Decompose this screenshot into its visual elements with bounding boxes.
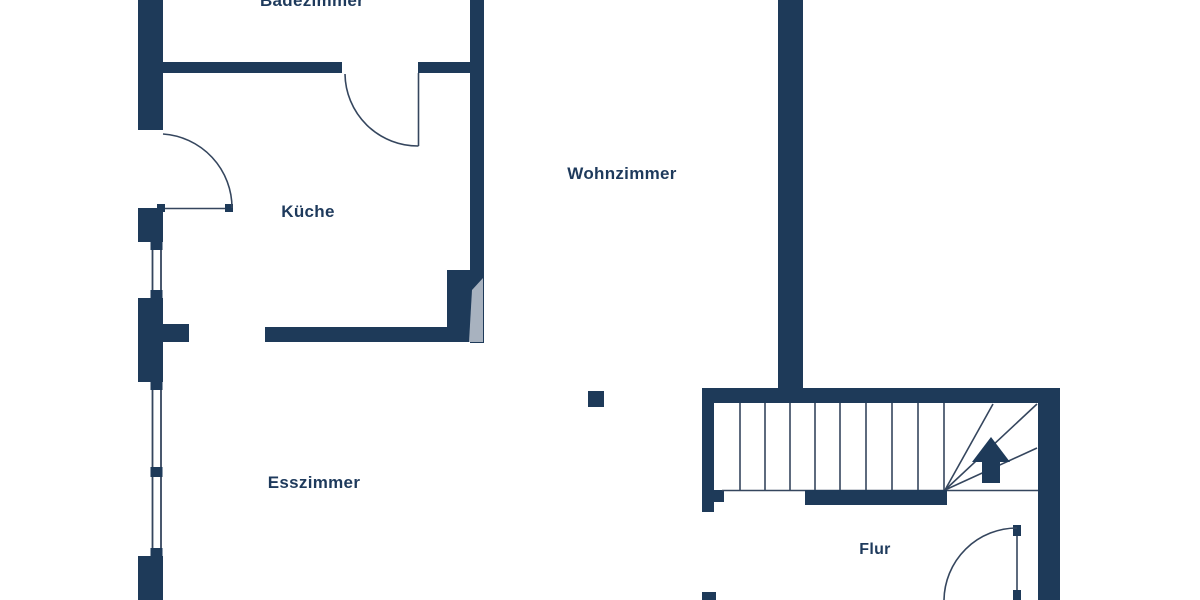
window-frame-mark <box>151 242 163 250</box>
wall-badezimmer-bottom-left <box>163 62 342 73</box>
window-esszimmer <box>151 382 163 556</box>
window-frame-mark <box>151 290 163 298</box>
door-swing-arc <box>163 134 232 208</box>
door-kueche <box>157 134 233 212</box>
wall-central <box>778 0 803 395</box>
floor-plan: Badezimmer Küche Wohnzimmer Esszimmer Fl… <box>0 0 1200 600</box>
arrow-shaft <box>982 462 1000 483</box>
wall-left-stub <box>163 324 189 342</box>
wall-stairs-top <box>702 388 1060 403</box>
door-entry-flur <box>944 525 1021 600</box>
door-leaf-tick <box>1013 590 1021 600</box>
wall-left-bottom <box>138 556 163 600</box>
arrow-head <box>972 437 1010 462</box>
floor-plan-svg <box>0 0 1200 600</box>
window-frame-mark <box>151 467 163 477</box>
door-swing-arc <box>345 74 419 146</box>
room-label-wohnzimmer: Wohnzimmer <box>567 164 676 184</box>
wall-under-stairs-overlay <box>805 490 947 505</box>
wall-badezimmer-bottom-right <box>418 62 470 73</box>
room-label-badezimmer: Badezimmer <box>260 0 364 11</box>
window-kueche <box>151 242 163 298</box>
stairs-up-arrow-icon <box>972 437 1010 483</box>
door-leaf-tick <box>157 204 165 212</box>
window-frame-mark <box>151 382 163 390</box>
room-label-flur: Flur <box>859 541 890 559</box>
wall-flur-left-jamb <box>702 592 716 600</box>
wall-stairs-left-lip <box>714 490 724 502</box>
wall-stairs-left <box>702 403 714 512</box>
wall-left-mid2 <box>138 298 163 382</box>
door-leaf-tick <box>1013 525 1021 536</box>
column-pillar <box>588 391 604 407</box>
door-badezimmer <box>345 73 419 146</box>
room-label-kueche: Küche <box>281 202 334 222</box>
window-frame-mark <box>151 548 163 556</box>
wall-right-exterior <box>1038 388 1060 600</box>
wall-left-mid1 <box>138 208 163 242</box>
wall-left-top <box>138 0 163 130</box>
room-label-esszimmer: Esszimmer <box>268 473 360 493</box>
walls <box>138 0 1060 600</box>
door-swing-arc <box>944 528 1017 600</box>
staircase <box>722 403 1038 505</box>
chimney-shaft <box>447 270 484 342</box>
